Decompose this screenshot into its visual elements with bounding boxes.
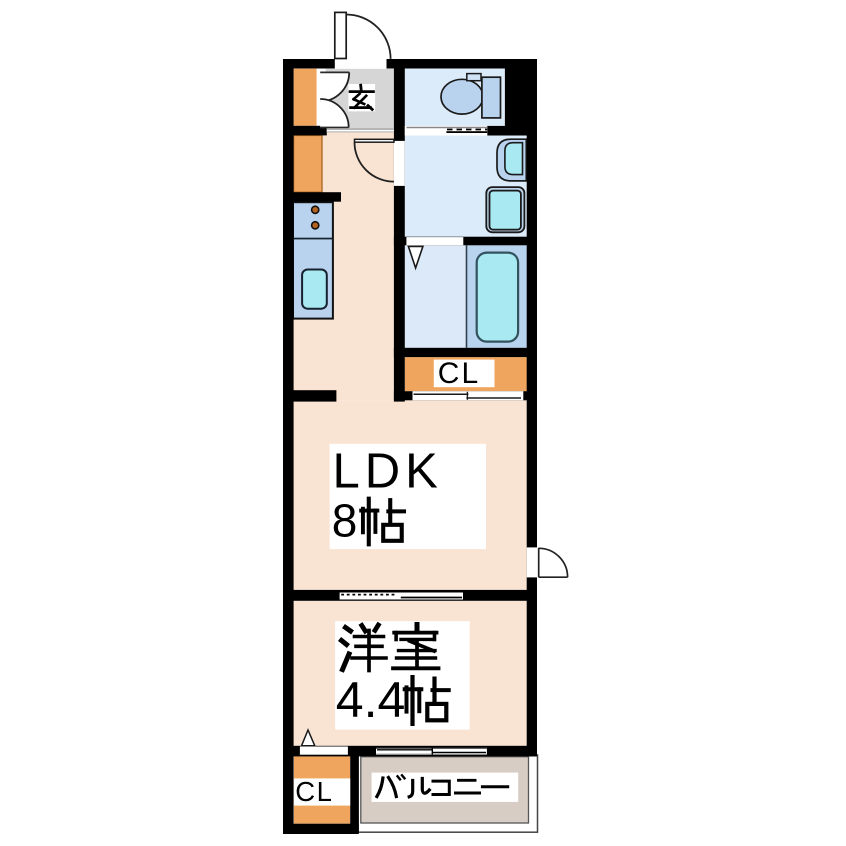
- svg-text:CL: CL: [295, 776, 333, 807]
- svg-text:4.4: 4.4: [336, 672, 406, 728]
- svg-text:8: 8: [332, 495, 358, 547]
- svg-text:CL: CL: [438, 357, 480, 390]
- svg-text:LDK: LDK: [333, 445, 443, 499]
